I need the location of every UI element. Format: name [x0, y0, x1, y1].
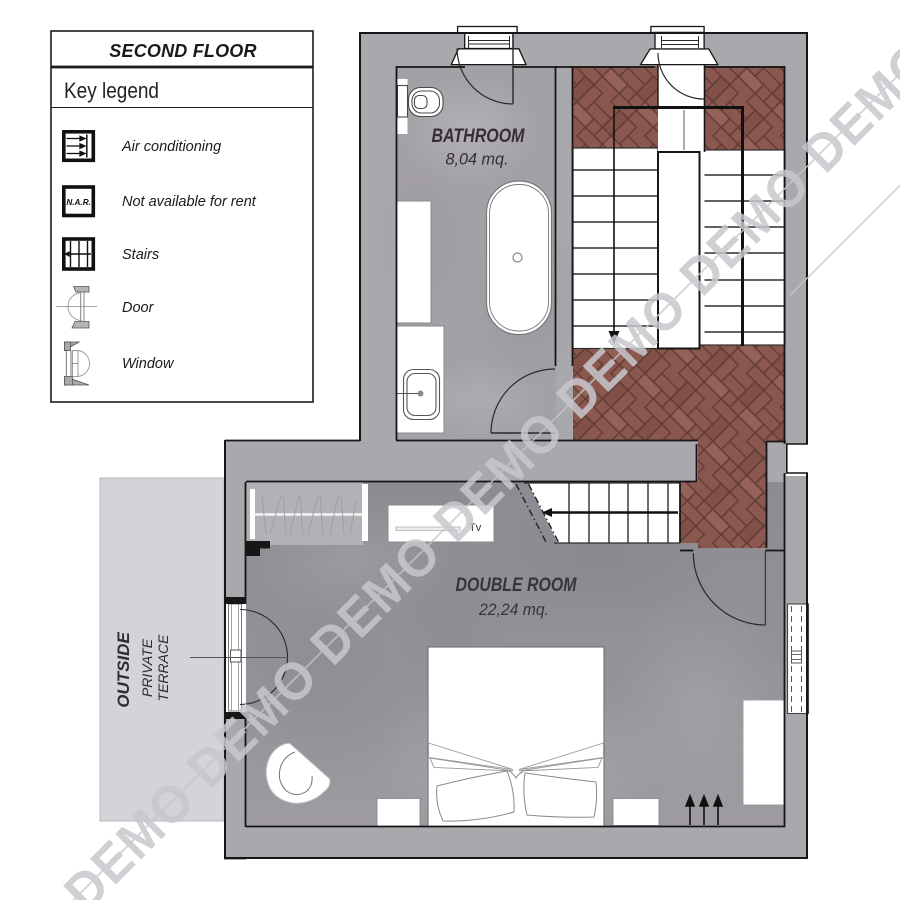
- svg-text:Stairs: Stairs: [122, 247, 159, 263]
- svg-text:TERRACE: TERRACE: [155, 634, 171, 702]
- svg-text:SECOND FLOOR: SECOND FLOOR: [109, 41, 256, 61]
- svg-text:Door: Door: [122, 300, 155, 316]
- svg-text:Air conditioning: Air conditioning: [121, 139, 221, 155]
- svg-text:PRIVATE: PRIVATE: [139, 638, 155, 697]
- svg-text:Window: Window: [122, 356, 175, 372]
- svg-text:8,04 mq.: 8,04 mq.: [446, 150, 509, 169]
- svg-text:22,24 mq.: 22,24 mq.: [478, 600, 549, 619]
- svg-text:OUTSIDE: OUTSIDE: [114, 632, 133, 708]
- svg-text:Key legend: Key legend: [64, 78, 159, 103]
- svg-text:Not available for rent: Not available for rent: [122, 194, 257, 210]
- svg-text:DOUBLE ROOM: DOUBLE ROOM: [456, 574, 578, 596]
- svg-text:N.A.R.: N.A.R.: [66, 198, 91, 207]
- svg-text:BATHROOM: BATHROOM: [432, 126, 526, 147]
